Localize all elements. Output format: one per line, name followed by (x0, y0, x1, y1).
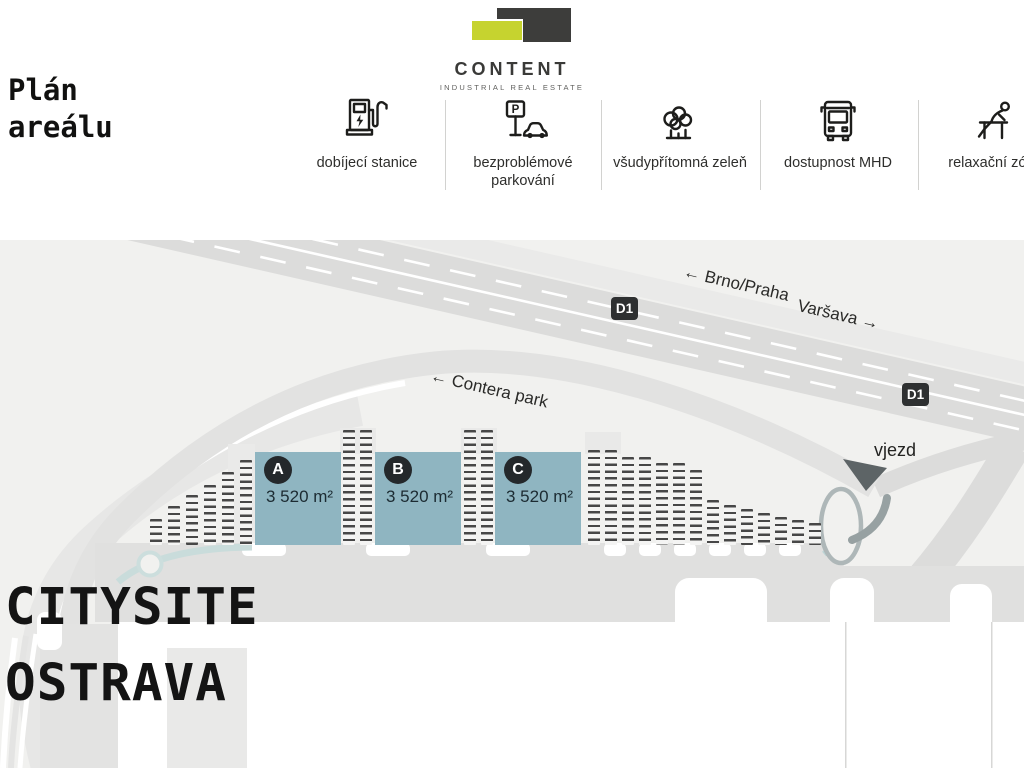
site-title: CITYSITE OSTRAVA (5, 570, 259, 722)
building-badge: B (384, 456, 412, 484)
entrance-loop (821, 489, 861, 563)
parking-row (168, 506, 180, 545)
parking-row (724, 505, 736, 545)
parking-row (481, 430, 493, 545)
ev-charging-icon (343, 94, 391, 146)
parking-row (204, 485, 216, 545)
parking-row (775, 517, 787, 545)
building-c[interactable]: C 3 520 m² (495, 452, 581, 545)
divider (445, 100, 446, 190)
divider (601, 100, 602, 190)
site-plan-map: ← Brno/Praha Varšava → ← Contera park vj… (0, 240, 1024, 768)
parking-row (360, 430, 372, 545)
feature-label: relaxační zóny (925, 154, 1024, 172)
page-title: Plán areálu (8, 72, 138, 146)
parking-row (758, 513, 770, 545)
parking-row (792, 520, 804, 545)
feature-parking: P bezproblémové parkování (453, 88, 593, 192)
parking-row (186, 495, 198, 545)
parking-row (741, 509, 753, 545)
feature-mhd: dostupnost MHD (768, 88, 908, 192)
entrance-label: vjezd (874, 440, 916, 461)
building-area: 3 520 m² (386, 487, 453, 507)
parking-sign-letter: P (512, 104, 520, 116)
parking-row (588, 450, 600, 545)
d1-badge: D1 (611, 297, 638, 320)
parking-row (656, 463, 668, 545)
feature-greenery: všudypřítomná zeleň (610, 88, 750, 192)
d1-badge: D1 (902, 383, 929, 406)
feature-label: bezproblémové parkování (453, 154, 593, 190)
divider (918, 100, 919, 190)
relax-zone-icon (971, 100, 1019, 146)
divider (760, 100, 761, 190)
feature-label: dostupnost MHD (768, 154, 908, 172)
bus-icon (814, 100, 862, 146)
parking-row (639, 457, 651, 545)
parking-row (150, 519, 162, 545)
parking-row (605, 450, 617, 545)
parking-row (690, 470, 702, 545)
parking-icon: P (496, 100, 550, 146)
content-logo[interactable]: CONTENT INDUSTRIAL REAL ESTATE (432, 8, 592, 92)
parking-row (464, 430, 476, 545)
parking-row (673, 463, 685, 545)
parking-row (240, 460, 252, 545)
feature-relax: relaxační zóny (925, 88, 1024, 192)
feature-ev-charging: dobíjecí stanice (297, 88, 437, 192)
feature-label: dobíjecí stanice (297, 154, 437, 172)
parking-row (343, 430, 355, 545)
building-area: 3 520 m² (506, 487, 573, 507)
parking-row (622, 457, 634, 545)
header: Plán areálu CONTENT INDUSTRIAL REAL ESTA… (0, 0, 1024, 240)
building-b[interactable]: B 3 520 m² (375, 452, 461, 545)
page: Plán areálu CONTENT INDUSTRIAL REAL ESTA… (0, 0, 1024, 768)
parking-row (809, 523, 821, 545)
building-badge: A (264, 456, 292, 484)
site-title-line2: OSTRAVA (5, 646, 259, 722)
logo-name: CONTENT (432, 59, 592, 80)
parking-row (222, 472, 234, 545)
site-title-line1: CITYSITE (5, 570, 259, 646)
feature-label: všudypřítomná zeleň (610, 154, 750, 172)
greenery-icon (656, 100, 704, 146)
parking-row (707, 500, 719, 545)
building-a[interactable]: A 3 520 m² (255, 452, 341, 545)
content-logo-icon (450, 8, 575, 52)
building-badge: C (504, 456, 532, 484)
building-area: 3 520 m² (266, 487, 333, 507)
